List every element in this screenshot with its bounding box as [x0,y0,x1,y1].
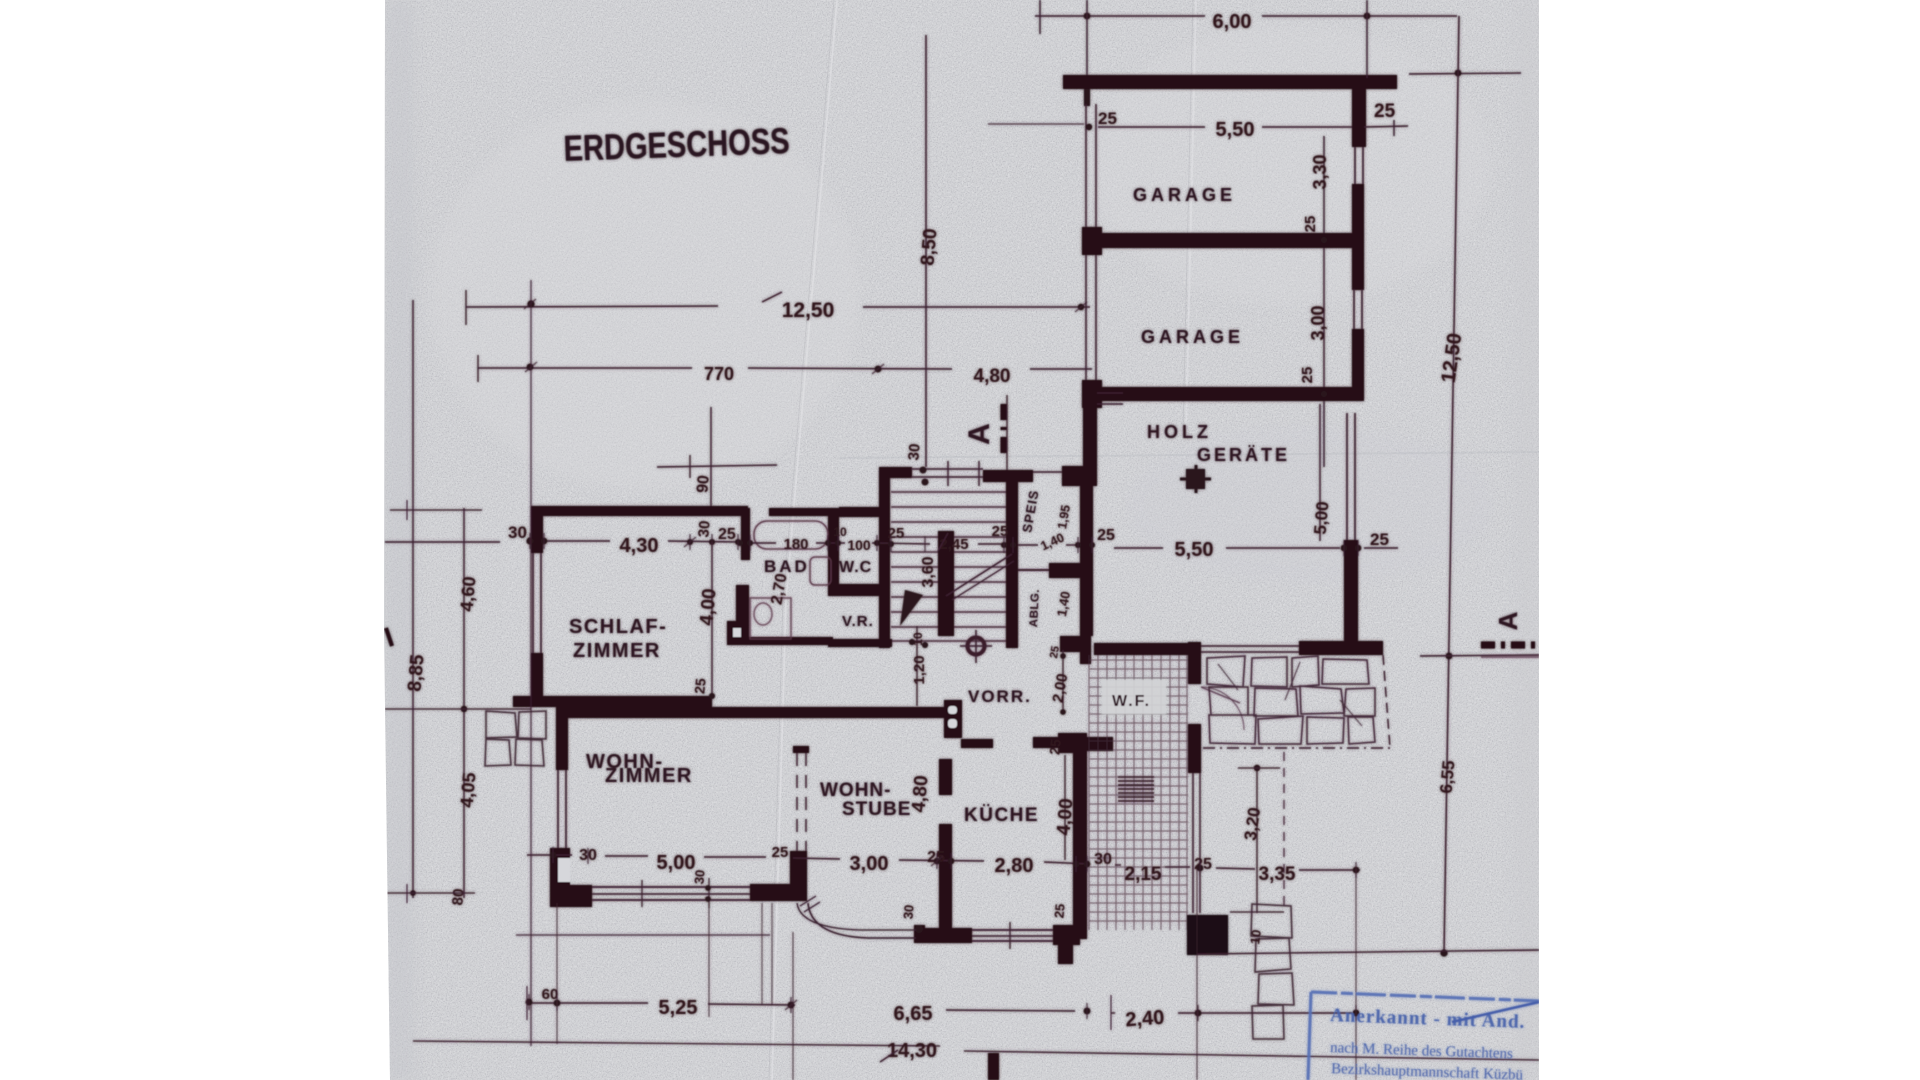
svg-text:4,05: 4,05 [457,772,480,809]
svg-text:180: 180 [783,536,808,553]
svg-text:25: 25 [992,523,1009,540]
svg-text:BAD: BAD [764,557,810,576]
svg-text:3,00: 3,00 [850,853,889,875]
svg-text:GERÄTE: GERÄTE [1197,445,1290,465]
svg-text:4,60: 4,60 [457,576,480,613]
svg-text:5,50: 5,50 [1175,539,1214,561]
svg-text:KÜCHE: KÜCHE [964,805,1039,826]
svg-text:8,85: 8,85 [404,653,428,692]
svg-text:60: 60 [542,986,559,1003]
svg-text:25: 25 [1370,530,1389,549]
svg-text:6,55: 6,55 [1437,760,1459,795]
svg-text:30: 30 [695,520,713,538]
svg-text:ZIMMER: ZIMMER [573,640,661,662]
svg-text:ZIMMER: ZIMMER [605,765,693,787]
svg-text:25: 25 [1097,527,1115,544]
svg-text:25: 25 [1046,738,1063,755]
svg-text:ABLG.: ABLG. [1028,589,1042,628]
svg-text:4,00: 4,00 [1053,798,1077,837]
svg-text:GARAGE: GARAGE [1133,185,1236,205]
svg-text:2,15: 2,15 [1125,864,1162,885]
svg-text:A: A [1493,611,1523,630]
svg-text:25: 25 [691,677,708,694]
svg-text:30: 30 [691,869,707,885]
svg-text:25: 25 [1302,216,1319,233]
svg-text:1,20: 1,20 [911,655,928,684]
svg-text:HOLZ: HOLZ [1147,422,1212,442]
svg-text:5,25: 5,25 [659,997,698,1019]
svg-text:30: 30 [1094,851,1112,868]
svg-text:STUBE: STUBE [842,799,911,820]
svg-text:25: 25 [718,526,736,543]
svg-text:W.C: W.C [839,559,872,576]
svg-text:SCHLAF-: SCHLAF- [569,616,667,638]
svg-text:6,65: 6,65 [894,1003,933,1025]
svg-text:30: 30 [900,904,916,920]
svg-text:3,00: 3,00 [1308,305,1328,340]
svg-text:V.R.: V.R. [842,613,874,630]
svg-text:GARAGE: GARAGE [1141,327,1244,347]
svg-text:5,00: 5,00 [1311,501,1333,536]
svg-text:30: 30 [508,523,527,542]
svg-text:90: 90 [694,474,712,493]
svg-text:5,00: 5,00 [657,852,696,874]
svg-text:2,45: 2,45 [939,536,968,553]
svg-text:6,00: 6,00 [1213,11,1252,33]
svg-text:25: 25 [772,844,789,861]
svg-text:8,50: 8,50 [917,228,941,267]
svg-text:2,40: 2,40 [1125,1007,1165,1032]
svg-text:25: 25 [1299,367,1316,384]
svg-text:25: 25 [1051,903,1067,919]
svg-text:3,30: 3,30 [1310,154,1330,189]
svg-text:30: 30 [905,443,923,461]
svg-text:80: 80 [449,888,467,906]
svg-text:VORR.: VORR. [968,687,1032,706]
svg-text:3,35: 3,35 [1259,864,1296,885]
svg-text:4,00: 4,00 [696,588,720,627]
svg-text:25: 25 [1098,109,1117,128]
svg-text:770: 770 [704,364,734,384]
svg-text:A: A [963,423,996,445]
svg-text:W.F.: W.F. [1112,693,1151,710]
svg-text:4,80: 4,80 [974,366,1011,387]
svg-text:14,30: 14,30 [887,1040,937,1062]
svg-text:25: 25 [888,525,905,542]
svg-text:3,60: 3,60 [920,556,937,587]
svg-text:25: 25 [1374,101,1396,122]
svg-text:25: 25 [1048,645,1062,659]
svg-text:2,80: 2,80 [995,855,1034,877]
svg-text:10: 10 [833,525,847,539]
svg-text:4,30: 4,30 [620,535,659,557]
svg-text:ERDGESCHOSS: ERDGESCHOSS [563,120,790,169]
svg-text:10: 10 [1247,929,1264,945]
svg-text:5,50: 5,50 [1216,119,1255,141]
svg-text:4,80: 4,80 [908,775,932,814]
svg-text:100: 100 [847,537,871,553]
svg-text:WOHN-: WOHN- [820,780,891,801]
svg-text:12,50: 12,50 [782,299,835,322]
